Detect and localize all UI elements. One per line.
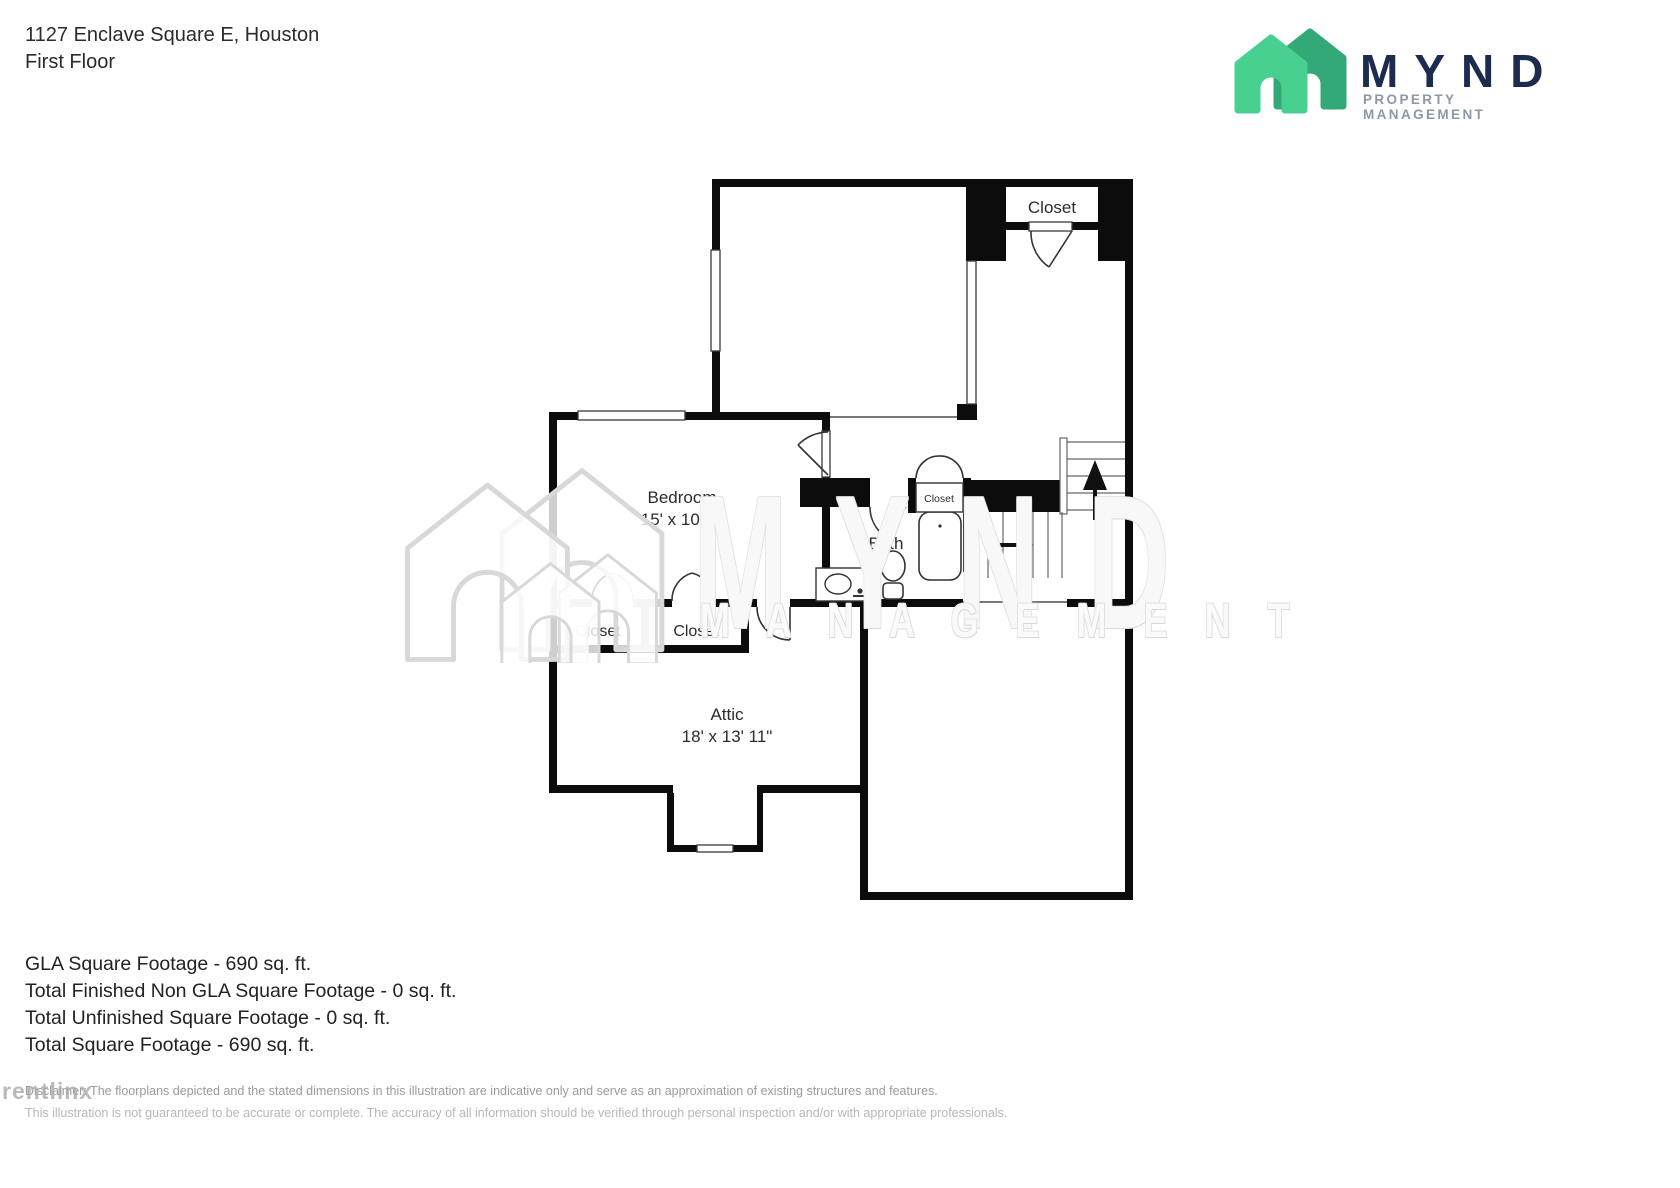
room-label-bedroom: Bedroom: [648, 488, 717, 507]
disclaimer-line-1: Disclaimer: The floorplans depicted and …: [25, 1084, 1007, 1099]
room-label-bath: Bath: [869, 534, 904, 553]
stairs-up-arrow-icon: [1083, 460, 1107, 520]
total-square-footage: Total Square Footage - 690 sq. ft.: [25, 1032, 456, 1059]
room-label-closet-right: Closet: [673, 623, 719, 640]
room-dims-attic: 18' x 13' 11": [682, 727, 773, 746]
bathtub-icon: [919, 512, 961, 580]
bifold-door-arc: [916, 456, 939, 478]
sink-icon: [816, 568, 872, 601]
toilet-icon: [881, 551, 905, 599]
room-dims-bedroom: 15' x 10' 1": [641, 510, 723, 529]
disclaimer-line-2: This illustration is not guaranteed to b…: [25, 1106, 1007, 1121]
bifold-door-arc: [592, 573, 612, 601]
unfinished-square-footage: Total Unfinished Square Footage - 0 sq. …: [25, 1005, 456, 1032]
stairs-upper: [1060, 438, 1125, 520]
stairs-lower: [973, 512, 1062, 578]
gla-square-footage: GLA Square Footage - 690 sq. ft.: [25, 951, 456, 978]
door-arc: [1031, 231, 1049, 267]
walls: [549, 179, 1133, 900]
window: [697, 845, 733, 852]
room-label-bath-closet: Closet: [924, 493, 954, 505]
room-label-attic: Attic: [710, 705, 744, 724]
door-jamb: [1029, 222, 1072, 231]
window: [967, 261, 976, 404]
room-label-closet-left: Closet: [575, 623, 621, 640]
window: [578, 411, 685, 420]
bifold-door-arc: [612, 573, 633, 601]
room-label-closet-top: Closet: [1028, 198, 1076, 217]
square-footage-summary: GLA Square Footage - 690 sq. ft. Total F…: [25, 951, 456, 1059]
disclaimer: Disclaimer: The floorplans depicted and …: [25, 1084, 1007, 1121]
bifold-door-arc: [692, 573, 713, 601]
door-arc: [870, 507, 881, 533]
bifold-door-arc: [939, 456, 963, 478]
window: [711, 250, 720, 351]
non-gla-square-footage: Total Finished Non GLA Square Footage - …: [25, 978, 456, 1005]
door-arc: [757, 607, 790, 640]
bifold-door-arc: [672, 573, 692, 601]
